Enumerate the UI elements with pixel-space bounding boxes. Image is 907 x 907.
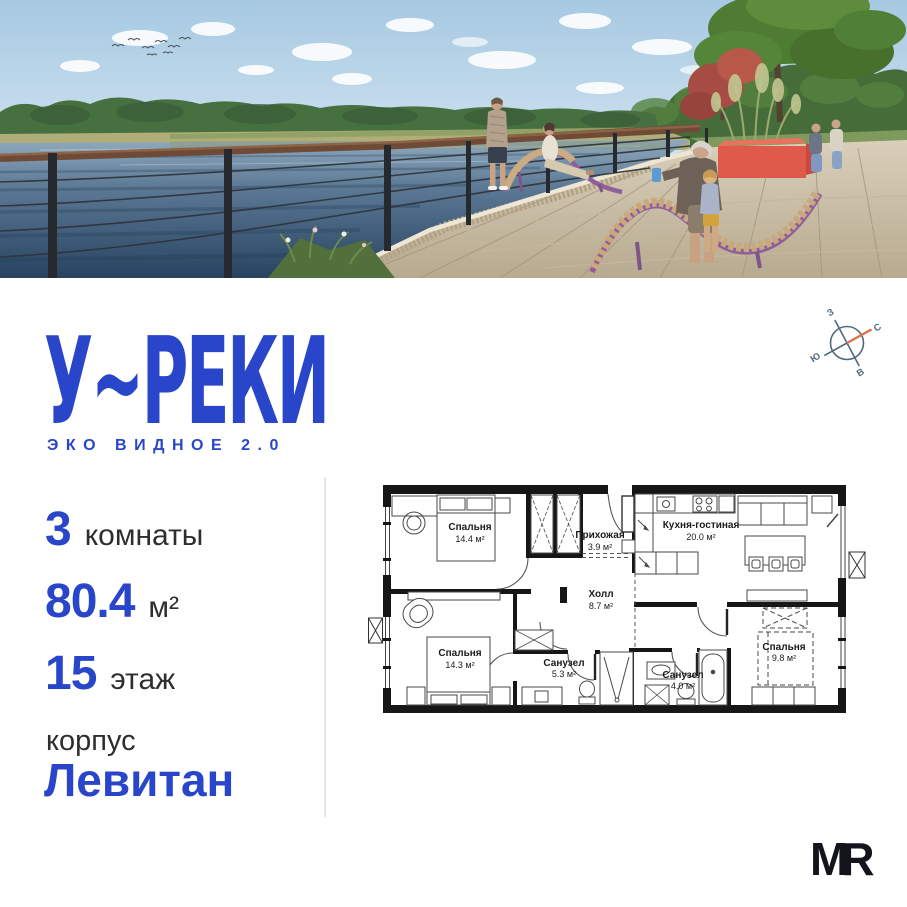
nightstand-1 [495,498,510,513]
tv-bench [747,590,807,601]
logo-title: У~РЕКИ [44,322,328,442]
sofa [738,496,807,525]
door-bedroom1 [497,558,528,589]
room-hall-name: Холл [588,589,613,600]
balcony-door [827,506,848,578]
stat-rooms-value: 3 [45,506,71,554]
hall-wardrobe [515,630,553,650]
building-name: Левитан [44,753,234,807]
room-kitchen-name: Кухня-гостиная [663,520,740,531]
room-bedroom3-area: 9.8 м² [772,653,796,663]
door-bedroom3 [698,607,727,636]
wardrobe-2 [557,495,580,553]
nightstand-2 [407,687,425,705]
room-kitchen-area: 20.0 м² [686,532,715,542]
mr-logo: MR [810,832,868,886]
room-bedroom1-name: Спальня [448,522,491,533]
compass-axis-s [824,343,847,356]
bath-cabinet [522,687,562,705]
room-bedroom2-area: 14.3 м² [445,660,474,670]
ac-unit-right [849,552,865,578]
flyer-canvas: У~РЕКИ ЭКО ВИДНОЕ 2.0 З С Ю В 3 комнаты … [0,0,907,907]
shoe-cabinet [622,540,636,553]
kitchen-counter [653,494,735,513]
toilet-1 [579,681,595,704]
stat-area-label: м² [148,593,179,623]
floorplan: Спальня 14.4 м² Прихожая 3.9 м² Кухня-го… [368,470,873,720]
compass-south: Ю [809,351,823,366]
compass-north: С [872,321,884,334]
room-bath2-area: 4.0 м² [671,681,695,691]
stat-floor: 15 этаж [45,650,175,698]
vertical-divider [324,477,326,817]
entrance-door [608,494,634,532]
stat-area: 80.4 м² [45,578,179,626]
room-bath1-area: 5.3 м² [552,669,576,679]
desk [392,496,437,516]
room-bath1-name: Санузел [543,658,584,669]
compass-west: З [825,307,836,320]
room-hallway-name: Прихожая [575,530,625,541]
stat-rooms: 3 комнаты [45,506,203,554]
room-hallway-area: 3.9 м² [588,542,612,552]
dresser-3 [752,687,815,705]
stat-floor-value: 15 [45,650,96,698]
side-table [812,496,832,513]
room-bedroom2-name: Спальня [438,648,481,659]
room-bedroom1-area: 14.4 м² [455,534,484,544]
room-bedroom3-name: Спальня [762,642,805,653]
shower [600,652,633,705]
washing-machine [645,685,669,705]
stat-area-value: 80.4 [45,578,134,626]
room-hall-area: 8.7 м² [589,601,613,611]
wardrobe-3 [763,608,807,628]
logo-subtitle: ЭКО ВИДНОЕ 2.0 [47,437,286,455]
stat-rooms-label: комнаты [85,521,204,551]
wardrobe-1 [531,495,553,553]
hero-photo [0,0,907,278]
stat-floor-label: этаж [110,665,175,695]
room-bath2-name: Санузел [662,670,703,681]
window-bedroom3 [836,617,848,688]
window-bedroom1 [381,507,393,575]
nightstand-3 [492,687,510,705]
sink [657,497,675,511]
compass: З С Ю В [798,298,896,404]
compass-east: В [855,366,867,379]
ac-unit-left [369,618,383,643]
hero-scene [0,0,907,278]
dining-set [745,536,805,571]
